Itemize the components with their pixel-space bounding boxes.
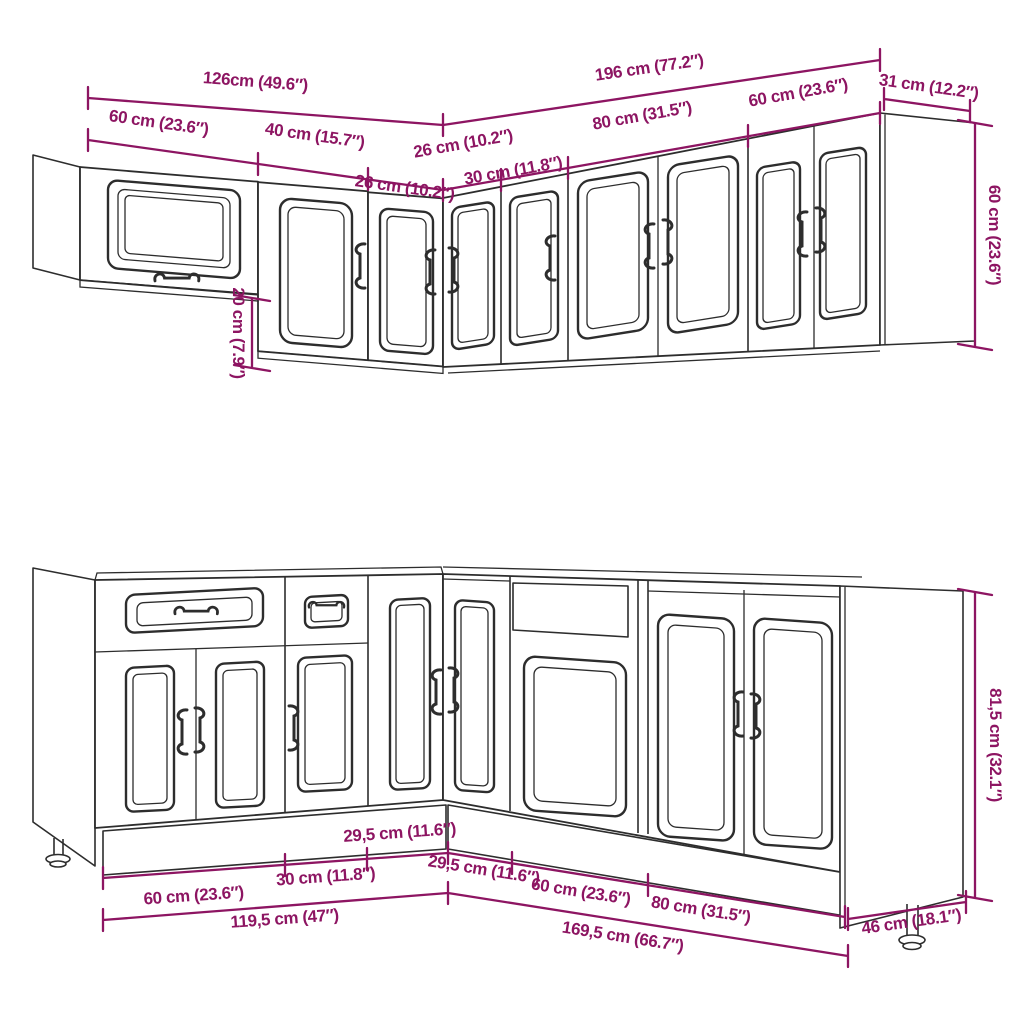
wall-right-side-panel <box>880 113 975 345</box>
dim-upper-unit-26-right-label: 26 cm (10.2″) <box>412 126 514 162</box>
dim-lower-height-label: 81,5 cm (32.1″) <box>986 688 1005 802</box>
dim-upper-unit-60-right-label: 60 cm (23.6″) <box>747 75 849 111</box>
dim-upper-unit-80-label: 80 cm (31.5″) <box>591 98 693 134</box>
wall-left-run <box>80 167 443 373</box>
diagram-canvas: 126cm (49.6″) 196 cm (77.2″) 31 cm (12.2… <box>0 0 1024 1024</box>
wall-left-side-panel <box>33 155 80 280</box>
base-sink-blank-panel <box>513 583 628 637</box>
base-right-side-panel <box>840 586 963 928</box>
dim-upper-height-label: 60 cm (23.6″) <box>985 185 1004 285</box>
base-left-side-panel <box>33 568 95 866</box>
dim-lower-unit-30-label: 30 cm (11.8″) <box>275 864 375 890</box>
dim-upper-unit-40-label: 40 cm (15.7″) <box>264 119 366 152</box>
dim-lower-total-right-label: 169,5 cm (66.7″) <box>561 918 685 956</box>
dim-upper-unit-60-left-label: 60 cm (23.6″) <box>108 106 210 139</box>
dim-upper-total-right-label: 196 cm (77.2″) <box>594 50 705 84</box>
dim-upper-total-left-label: 126cm (49.6″) <box>202 68 308 95</box>
dim-upper-end-depth-label: 31 cm (12.2″) <box>878 70 980 103</box>
wall-cabinet-60-flip <box>80 167 258 295</box>
kitchen-cabinet-dimension-diagram: 126cm (49.6″) 196 cm (77.2″) 31 cm (12.2… <box>0 0 1024 1024</box>
dim-upper-offset-label: 20 cm (7.9″) <box>229 287 248 378</box>
dim-lower-height: 81,5 cm (32.1″) <box>958 589 1005 901</box>
dim-lower-unit-60-left-label: 60 cm (23.6″) <box>143 883 244 909</box>
